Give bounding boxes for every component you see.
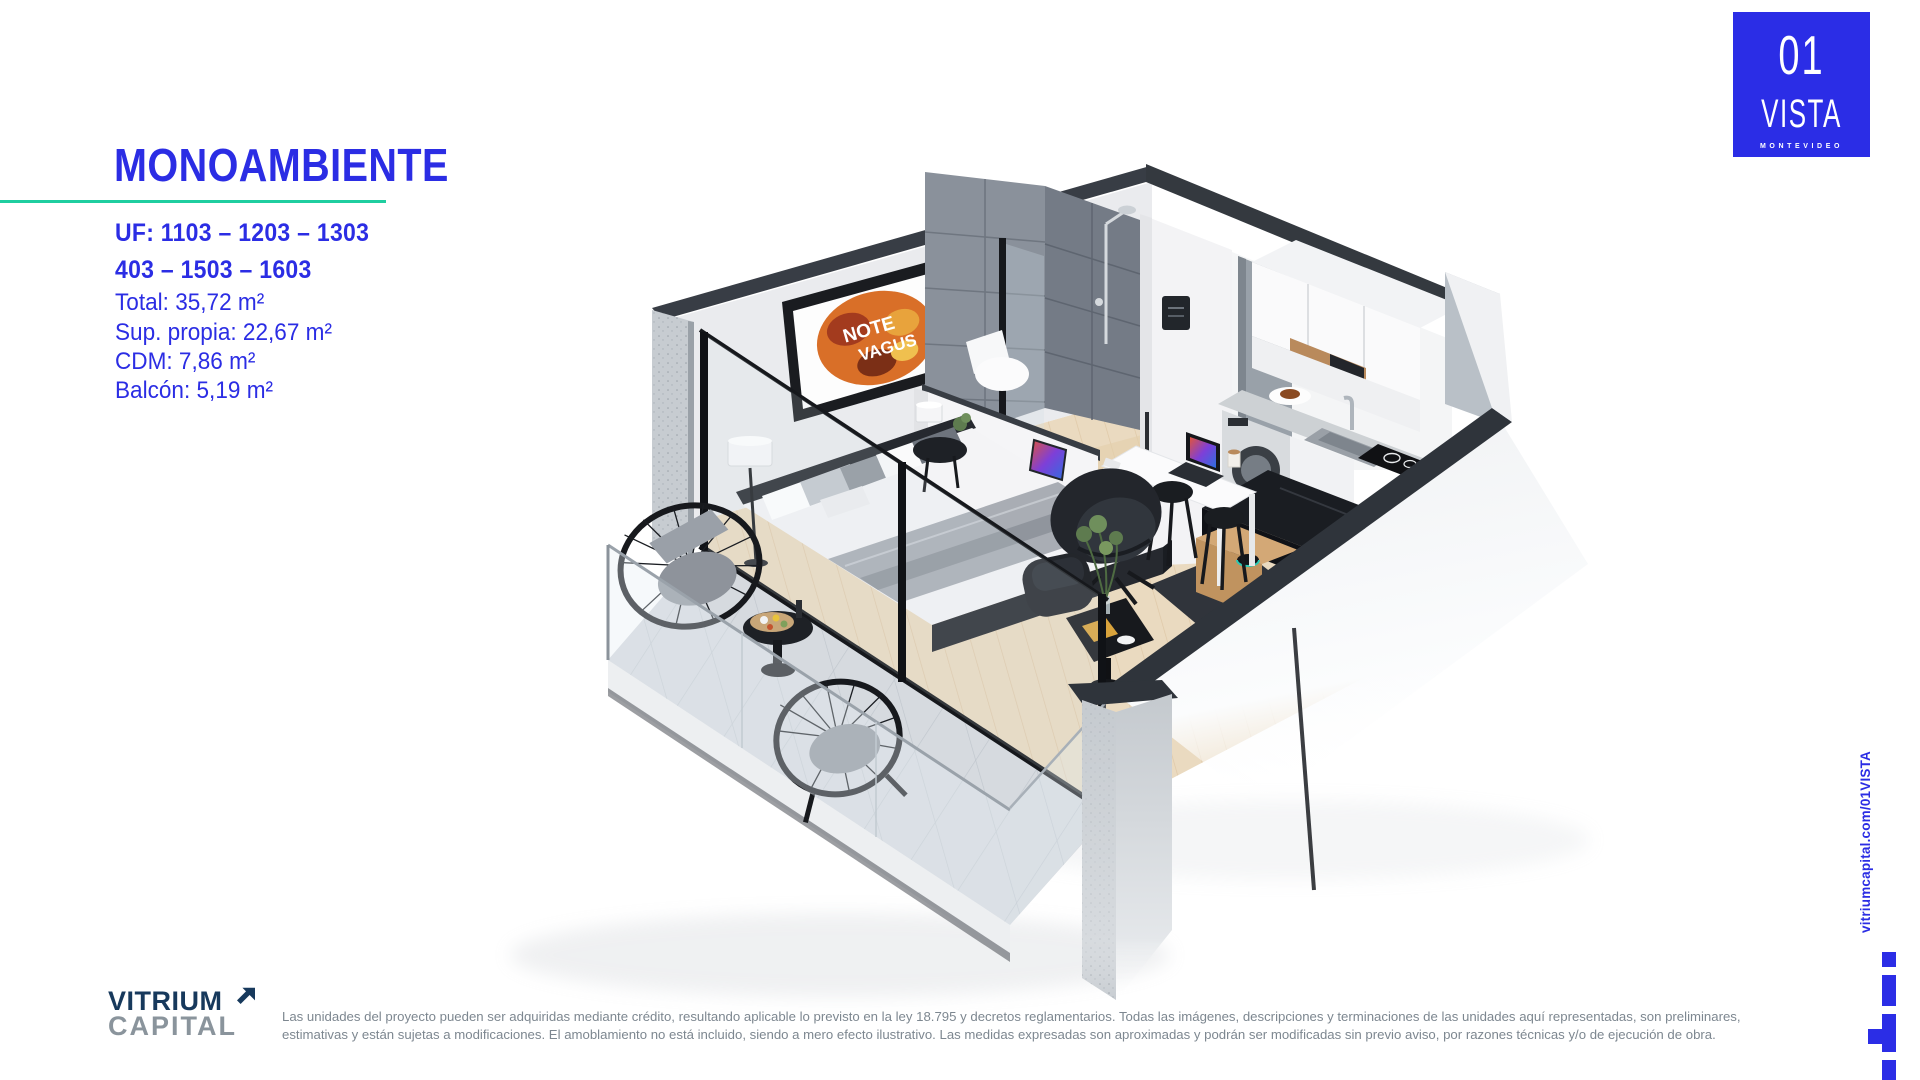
pixel-deco-6 (1882, 1060, 1896, 1080)
vitrium-arrow-icon (237, 986, 259, 1008)
brochure-page: { "colors":{"brand_blue":"#2B2DE4","teal… (0, 0, 1920, 1080)
coffee-cup (1228, 450, 1240, 468)
bowl (1117, 636, 1135, 645)
floorplan-render: NOTE VAGUS (0, 0, 1920, 1080)
capital-wordmark: CAPITAL (108, 1011, 237, 1042)
legal-disclaimer-line2: estimativas y están sujetas a modificaci… (282, 1026, 1741, 1044)
pixel-deco-5 (1882, 1029, 1896, 1052)
pixel-deco-2 (1882, 975, 1896, 1006)
smart-speaker (1237, 554, 1259, 566)
pixel-deco-3 (1882, 1014, 1896, 1029)
pixel-deco-1 (1882, 952, 1896, 967)
legal-disclaimer: Las unidades del proyecto pueden ser adq… (282, 1008, 1741, 1043)
smart-lock-panel (1162, 296, 1190, 330)
legal-disclaimer-line1: Las unidades del proyecto pueden ser adq… (282, 1008, 1741, 1026)
bottle (796, 600, 802, 618)
website-url[interactable]: vitriumcapital.com/01VISTA (1858, 751, 1873, 933)
pixel-deco-4 (1868, 1029, 1882, 1044)
